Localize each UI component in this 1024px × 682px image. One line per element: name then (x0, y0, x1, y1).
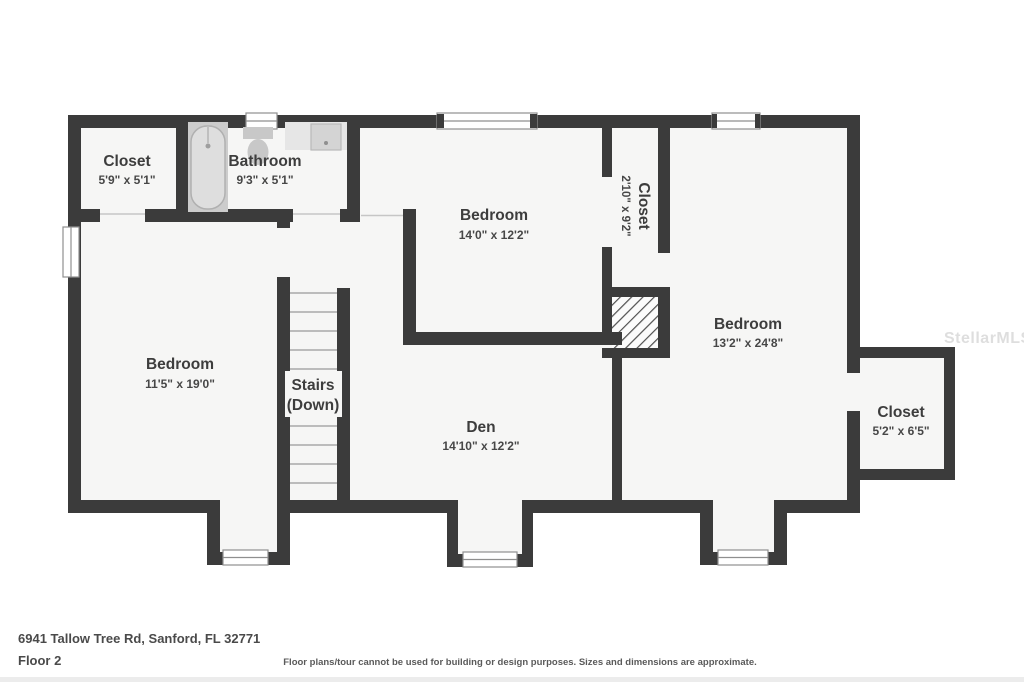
window-bedroom-left-bottom (223, 550, 268, 565)
room-dims-closet-right: 5'2" x 6'5" (872, 424, 929, 438)
room-label-stairs: Stairs (291, 377, 334, 394)
room-dims-bathroom: 9'3" x 5'1" (236, 173, 293, 187)
room-dims-bedroom-left: 11'5" x 19'0" (145, 377, 215, 391)
window-den-bottom (463, 552, 517, 567)
room-dims-stairs: (Down) (287, 397, 340, 414)
room-dims-bedroom-right: 13'2" x 24'8" (713, 336, 783, 350)
room-label-closet-top-left: Closet (103, 153, 150, 170)
room-dims-den: 14'10" x 12'2" (442, 439, 519, 453)
room-label-group-closet-tall: Closet 2'10" x 9'2" (619, 175, 652, 236)
window-bedroom-top (437, 113, 537, 129)
room-label-bedroom-left: Bedroom (146, 356, 214, 373)
window-bathroom-top (246, 113, 277, 129)
sink-icon (311, 124, 341, 150)
window-bedroom-left-side (63, 227, 79, 277)
bottom-edge-band (0, 677, 1024, 682)
room-dims-bedroom-top: 14'0" x 12'2" (459, 228, 529, 242)
room-dims-closet-tall: 2'10" x 9'2" (619, 175, 631, 236)
room-label-closet-tall: Closet (635, 182, 652, 229)
window-bedroom-right-top (712, 113, 760, 129)
room-label-bathroom: Bathroom (228, 153, 301, 170)
stellar-mls-watermark: StellarMLS (944, 330, 1024, 348)
property-address: 6941 Tallow Tree Rd, Sanford, FL 32771 (18, 631, 260, 646)
disclaimer-text: Floor plans/tour cannot be used for buil… (0, 657, 1024, 668)
window-bedroom-right-bottom (718, 550, 768, 565)
room-label-bedroom-right: Bedroom (714, 316, 782, 333)
floor-plan-svg: Closet 5'9" x 5'1" Bathroom 9'3" x 5'1" … (0, 0, 1024, 682)
room-dims-closet-top-left: 5'9" x 5'1" (98, 173, 155, 187)
room-label-den: Den (466, 419, 495, 436)
room-label-closet-right: Closet (877, 404, 924, 421)
room-label-bedroom-top: Bedroom (460, 207, 528, 224)
floor-plan-page: Closet 5'9" x 5'1" Bathroom 9'3" x 5'1" … (0, 0, 1024, 682)
